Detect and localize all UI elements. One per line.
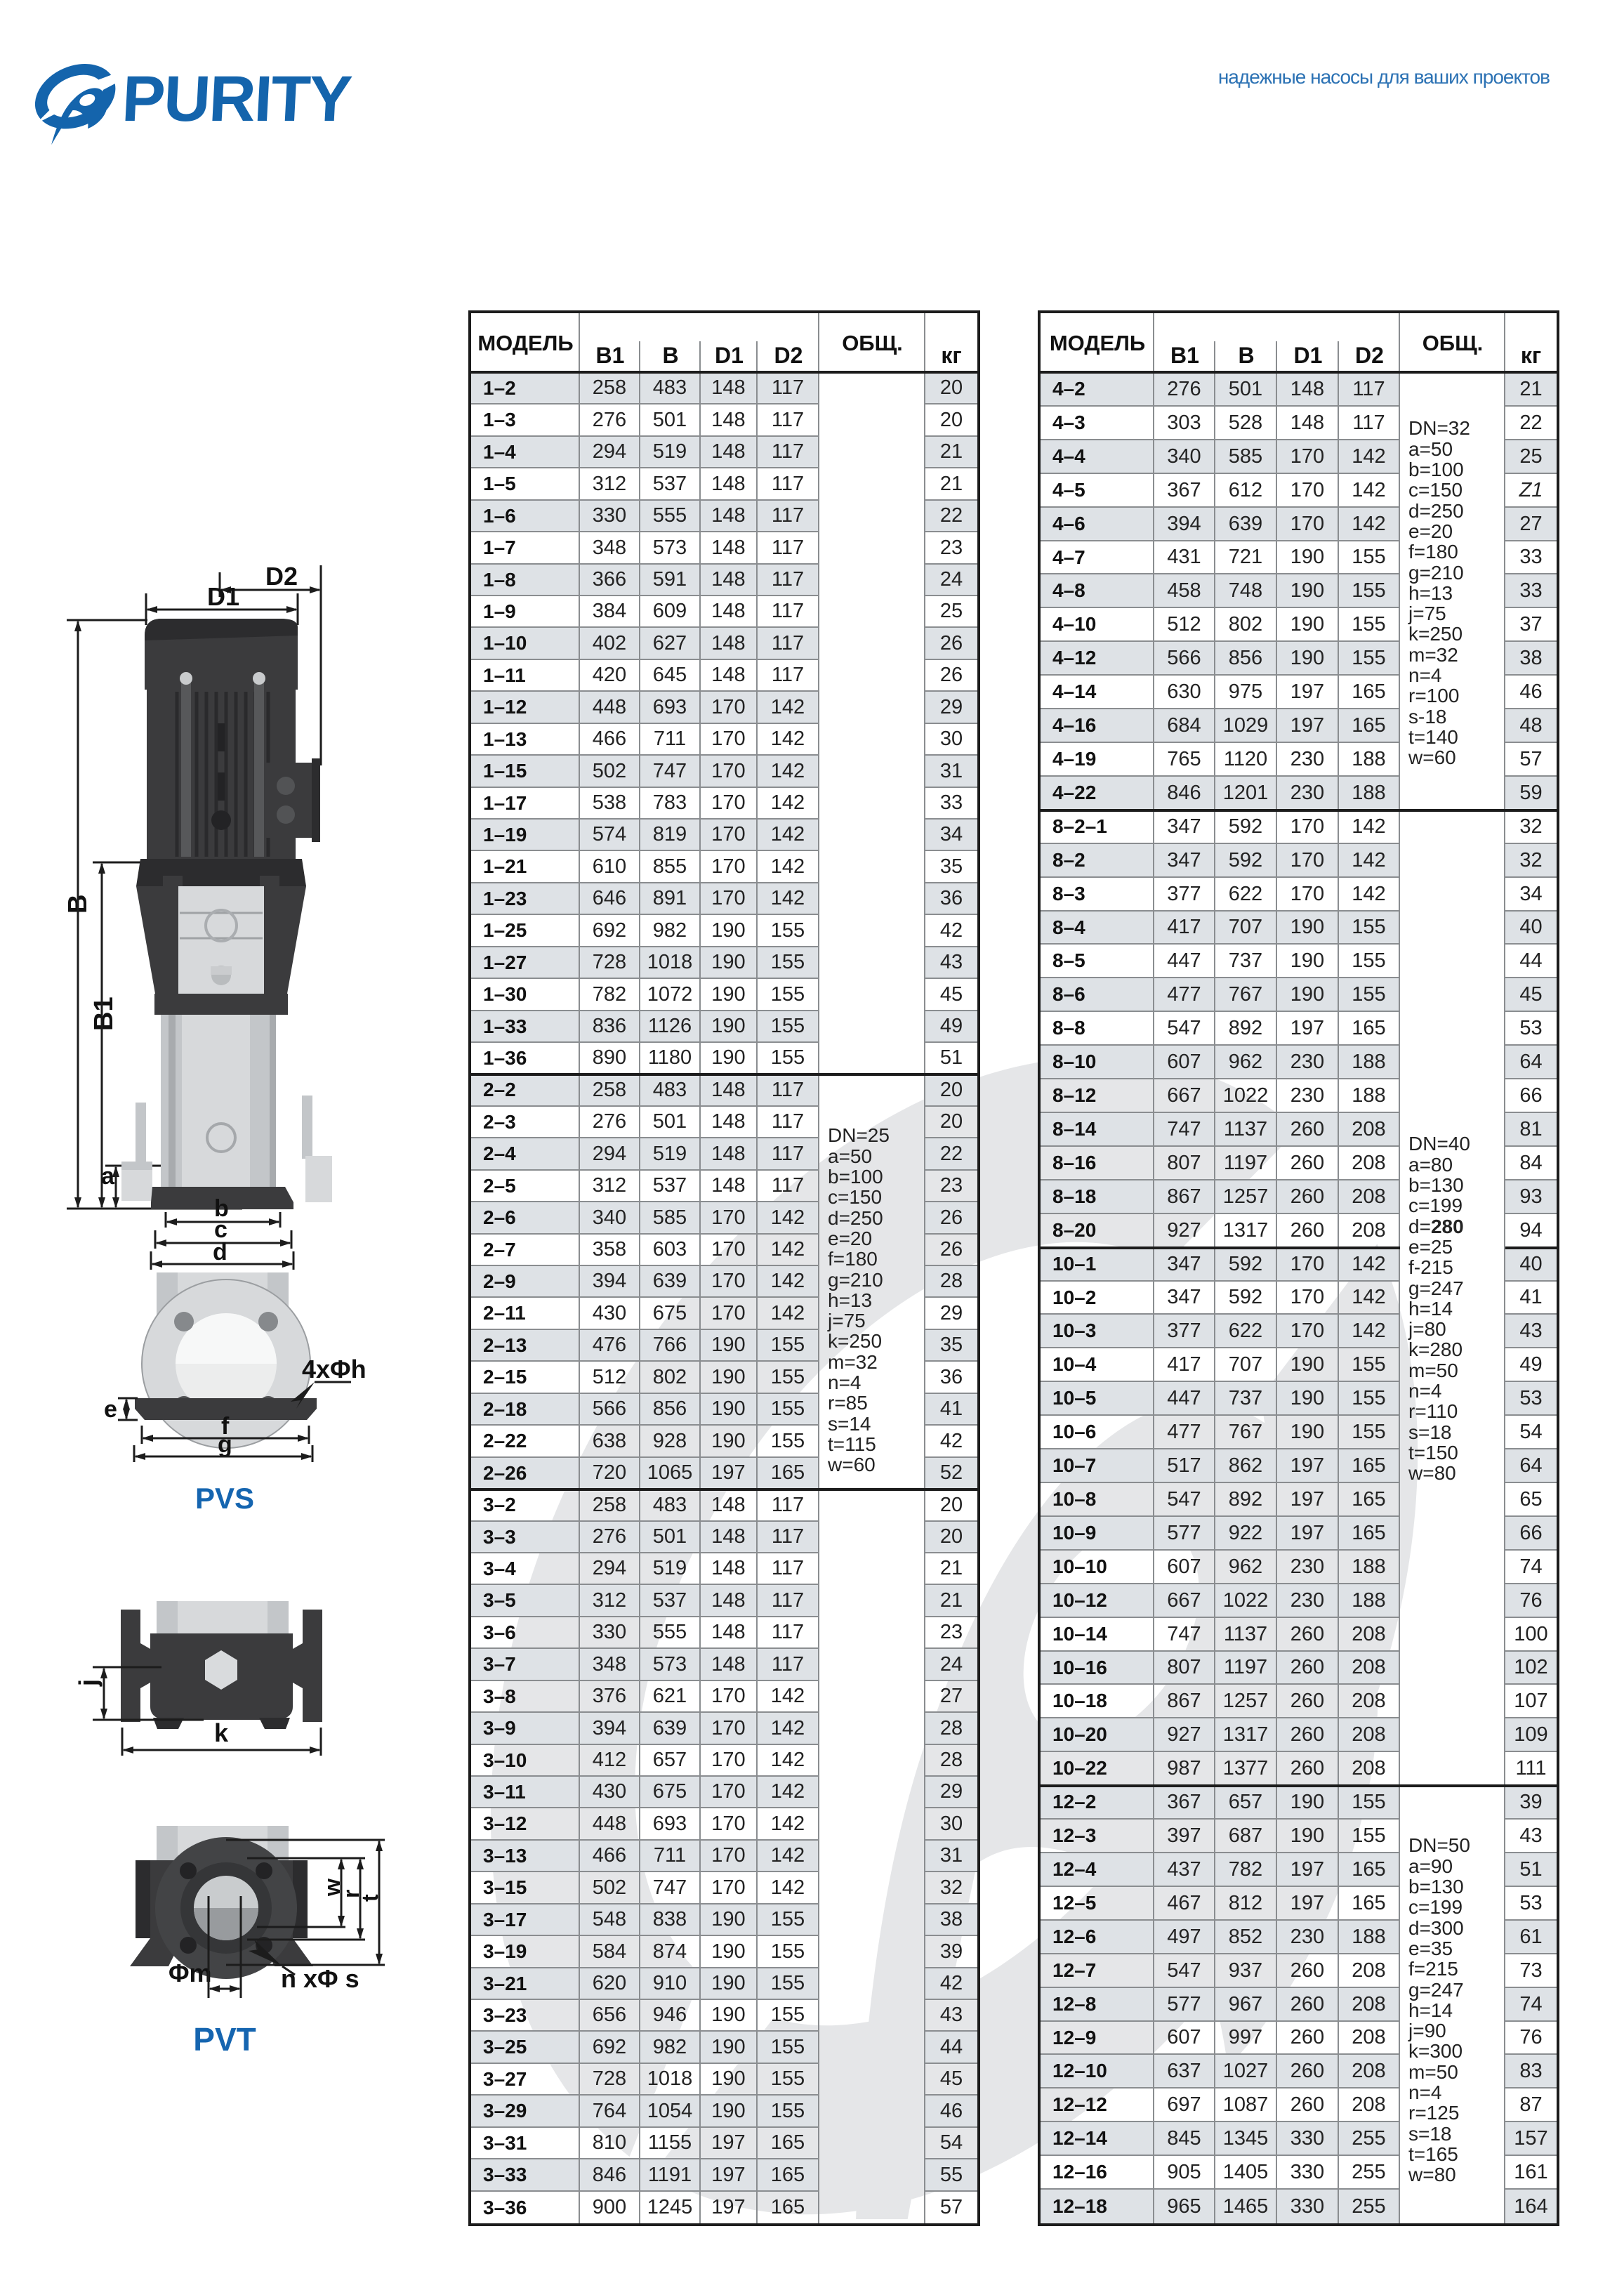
svg-text:PVT: PVT [193,2021,256,2058]
svg-text:D2: D2 [265,562,298,591]
svg-text:D1: D1 [207,582,239,611]
svg-text:t: t [357,1894,383,1902]
svg-text:B1: B1 [89,996,119,1031]
svg-text:4xΦh: 4xΦh [302,1355,367,1383]
svg-text:PVS: PVS [195,1482,254,1515]
svg-text:e: e [104,1396,117,1423]
svg-text:d: d [213,1239,227,1265]
svg-text:j: j [74,1679,103,1687]
svg-text:Φm: Φm [169,1959,212,1987]
svg-text:k: k [214,1718,229,1747]
svg-text:n xΦ s: n xΦ s [281,1964,359,1993]
svg-text:g: g [218,1431,232,1458]
